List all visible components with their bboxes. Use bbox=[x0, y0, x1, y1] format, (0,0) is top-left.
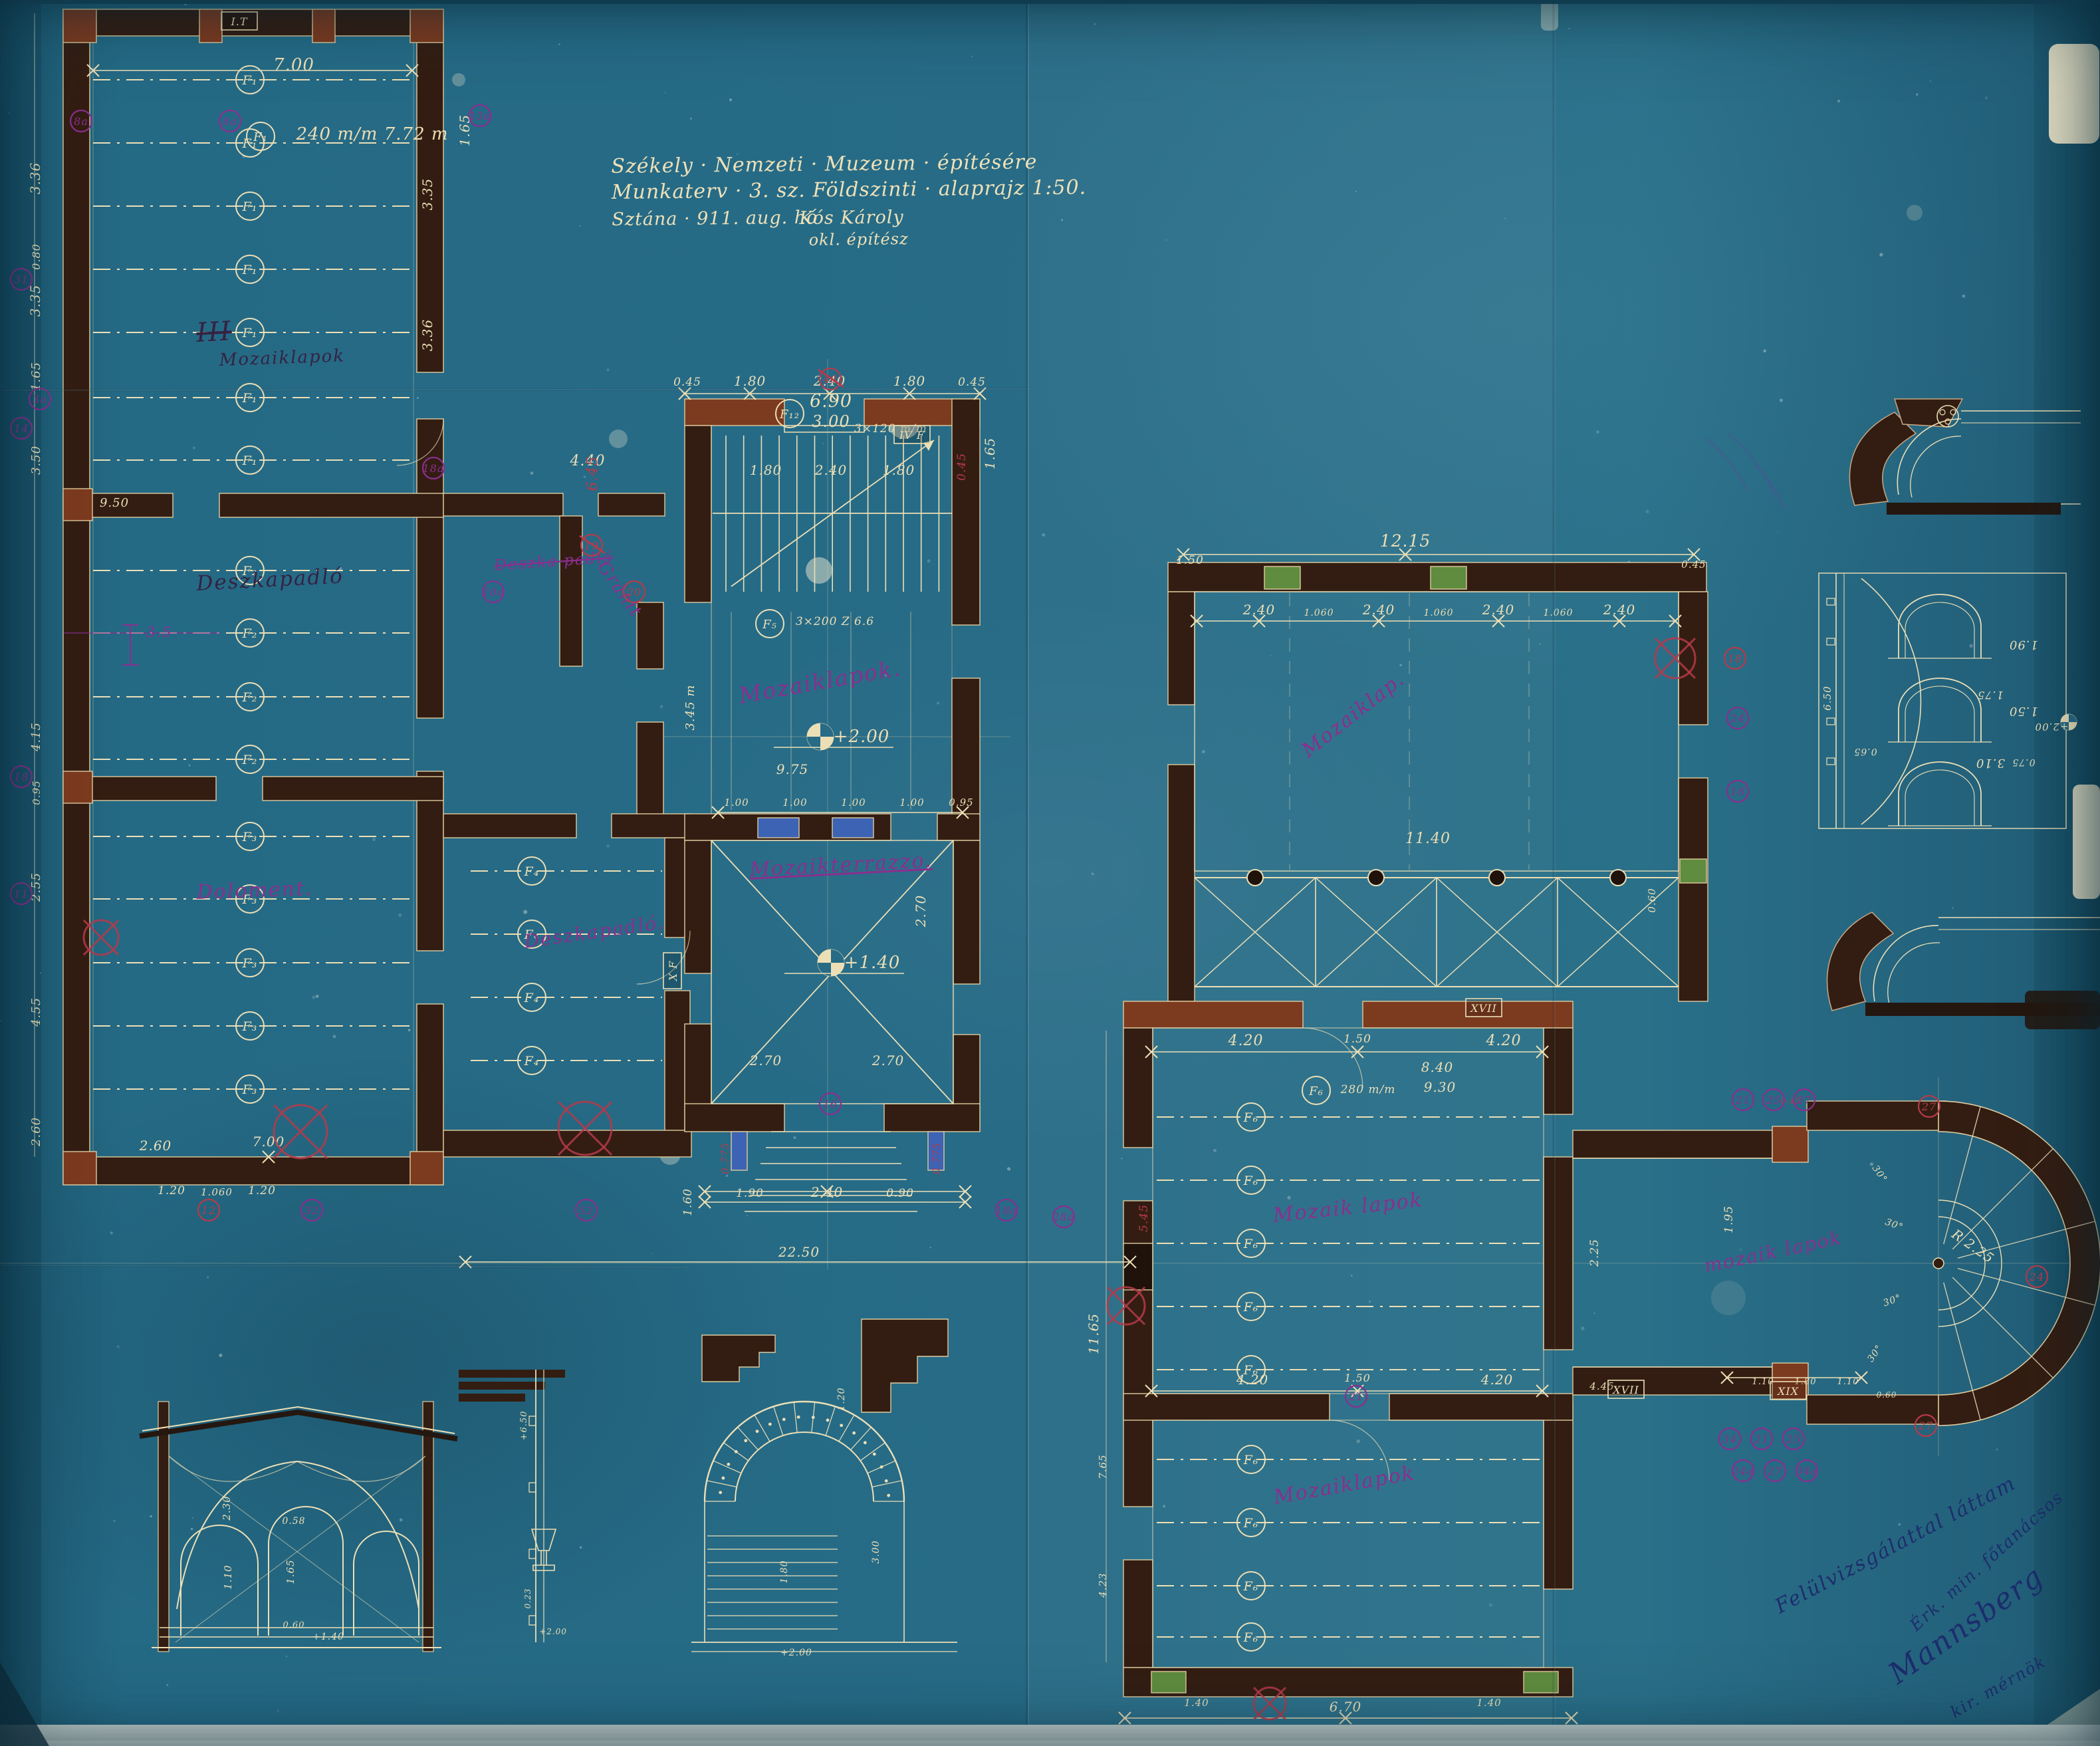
wall-segment bbox=[685, 1104, 784, 1132]
dimension-value: 1.90 bbox=[736, 1187, 764, 1200]
dimension-value: 1.060 bbox=[201, 1186, 233, 1198]
dimension-value: 6.50 bbox=[1821, 686, 1833, 710]
beam-label: F₆ bbox=[1243, 1630, 1259, 1645]
level-symbol-quadrant bbox=[831, 949, 844, 963]
architect-title: okl. építész bbox=[808, 228, 984, 251]
circled-number-text: 21 bbox=[1348, 1390, 1363, 1403]
arched-window bbox=[1905, 686, 1974, 742]
wall-segment bbox=[1168, 592, 1195, 705]
dimension-value: 3×200 Z 6.6 bbox=[796, 615, 874, 628]
beam-label: F₆ bbox=[1243, 1174, 1259, 1188]
dimension-value: 1.40 bbox=[1184, 1697, 1209, 1709]
speckle bbox=[606, 368, 609, 371]
dimension-value: +1.40 bbox=[312, 1632, 344, 1642]
circled-number-text: 18 bbox=[1730, 785, 1745, 798]
pencil-scribble bbox=[1706, 434, 1784, 509]
beam-label: F₆ bbox=[1308, 1084, 1324, 1098]
wall-segment bbox=[685, 399, 784, 426]
circled-number-text: 25 bbox=[1786, 1433, 1801, 1445]
circled-number-text: 12 bbox=[201, 1204, 216, 1217]
speckle bbox=[690, 118, 692, 120]
wall-segment bbox=[884, 1104, 980, 1132]
circled-number-text: 24 bbox=[1730, 712, 1745, 725]
wall-segment bbox=[63, 1152, 96, 1185]
ornament-dot bbox=[719, 1491, 722, 1494]
dimension-value: 1.80 bbox=[893, 373, 926, 389]
wall-segment bbox=[443, 1130, 691, 1157]
dimension-value: 0.75 bbox=[2012, 757, 2035, 767]
rect bbox=[529, 1616, 536, 1625]
beam-label: F₆ bbox=[1243, 1110, 1259, 1125]
dimension-value: +2.00 bbox=[780, 1648, 812, 1658]
section-wall bbox=[158, 1402, 169, 1652]
wall-segment bbox=[1123, 1028, 1153, 1148]
dimension-value: 1.40 bbox=[1476, 1697, 1501, 1709]
torn-paper-patch bbox=[2049, 44, 2099, 144]
wall-segment bbox=[952, 399, 980, 625]
ornament-dot bbox=[727, 1463, 730, 1466]
wall-segment bbox=[312, 9, 335, 43]
boxed-label-text: XIX bbox=[1776, 1385, 1799, 1398]
beam-label: F₂ bbox=[242, 753, 258, 767]
speckle bbox=[1593, 1312, 1595, 1314]
dimension-value: 1.90 bbox=[2009, 638, 2038, 652]
arched-window bbox=[1899, 594, 1981, 658]
title-line-1: Székely · Nemzeti · Muzeum · építésére bbox=[611, 150, 983, 180]
circled-number-text: 16 bbox=[823, 1098, 838, 1110]
speckle bbox=[1492, 1364, 1493, 1366]
speckle bbox=[1355, 191, 1357, 192]
dimension-value: 3.35 bbox=[27, 285, 43, 317]
dimension-value: 3.10 bbox=[1976, 756, 2005, 770]
wall-segment bbox=[199, 9, 222, 43]
boxed-label: I.T bbox=[221, 12, 257, 30]
paper-stain bbox=[452, 73, 465, 86]
speckle bbox=[746, 1215, 748, 1217]
circled-number-text: 18 bbox=[14, 771, 29, 783]
beam-label: F₁ bbox=[242, 73, 258, 88]
voussoir-line bbox=[713, 1461, 741, 1473]
dimension-value: +2.00 bbox=[539, 1627, 567, 1636]
circled-number-text: 25 bbox=[1766, 1094, 1781, 1106]
wall-segment bbox=[1679, 778, 1708, 1001]
speckle bbox=[1092, 872, 1094, 875]
rect bbox=[529, 1416, 536, 1426]
dimension-value: 4.55 bbox=[29, 997, 43, 1027]
speckle bbox=[665, 92, 666, 93]
section-arch-window bbox=[181, 1525, 258, 1636]
circled-number-text: 18a bbox=[423, 462, 445, 475]
circled-number-text: 24a bbox=[1732, 1465, 1754, 1477]
corbel-detail bbox=[862, 1319, 948, 1412]
ornament-dot bbox=[722, 1477, 725, 1480]
wall-segment bbox=[1573, 1130, 1772, 1158]
speckle bbox=[1163, 1505, 1165, 1508]
boxed-label-text: XVII bbox=[1469, 1002, 1497, 1015]
ornament-dot bbox=[797, 1416, 800, 1419]
wall-segment bbox=[443, 814, 576, 838]
room-label: Mozaikterrazzo. bbox=[749, 849, 933, 882]
wall-segment bbox=[63, 9, 96, 43]
speckle bbox=[1777, 531, 1778, 532]
beam-label: F₁ bbox=[242, 263, 258, 277]
beam-label: F₆ bbox=[1243, 1579, 1259, 1594]
wall-segment bbox=[952, 678, 980, 815]
dimension-value: 1.20 bbox=[158, 1184, 185, 1197]
dimension-value: 1.65 bbox=[29, 362, 43, 391]
paper-stain bbox=[1711, 1281, 1746, 1315]
dimension-value: 7.00 bbox=[273, 55, 314, 75]
dimension-value: 1.060 bbox=[1543, 608, 1573, 618]
dimension-value: 0.58 bbox=[282, 1516, 305, 1527]
profile-step bbox=[459, 1394, 525, 1402]
speckle bbox=[1898, 1523, 1901, 1526]
wall-segment bbox=[1679, 592, 1708, 725]
dimension-value: 1.060 bbox=[1423, 608, 1453, 618]
dimension-value: 22.50 bbox=[778, 1244, 820, 1260]
wall-segment bbox=[63, 771, 92, 803]
speckle bbox=[40, 972, 41, 973]
arch-section-wall bbox=[1850, 412, 1917, 505]
speckle bbox=[1504, 218, 1506, 219]
dimension-value: 3.00 bbox=[871, 1540, 881, 1563]
corbel-detail bbox=[702, 1335, 775, 1382]
beam-label: F₃ bbox=[242, 1019, 258, 1034]
beam-label: F₃ bbox=[242, 1082, 258, 1097]
scan-edge bbox=[0, 0, 2100, 4]
wall-segment bbox=[953, 840, 980, 984]
room-label: Deszkapadló. bbox=[522, 912, 665, 953]
room-label: Mozaiklapok. bbox=[737, 655, 903, 709]
dimension-value: 12.15 bbox=[1380, 531, 1431, 551]
dimension-value: 2.40 bbox=[1603, 602, 1636, 618]
dimension-value: 3.45 m bbox=[683, 685, 697, 731]
dimension-value: +2.00 bbox=[2035, 721, 2069, 733]
dimension-value: 1.50 bbox=[2009, 704, 2038, 718]
ink-blot bbox=[2025, 991, 2100, 1029]
speckle bbox=[1121, 1158, 1123, 1160]
circled-number-text: 34 bbox=[1722, 1433, 1737, 1445]
paper-texture-layer bbox=[0, 0, 2100, 1746]
beam-label: F₃ bbox=[242, 956, 258, 971]
window-green-mark bbox=[1680, 859, 1706, 883]
wall-segment bbox=[1123, 1560, 1153, 1668]
dimension-value: 6.90 bbox=[810, 391, 852, 412]
column-dot bbox=[1368, 870, 1384, 886]
dimension-value: 1.00 bbox=[899, 797, 924, 809]
dimension-value: 1.80 bbox=[779, 1560, 790, 1583]
boxed-label: XVII bbox=[1466, 999, 1502, 1017]
beam-label: F₁ bbox=[242, 391, 258, 406]
level-symbol-quadrant bbox=[820, 723, 834, 737]
room-label: Deszkapadló bbox=[195, 564, 344, 596]
wall-segment bbox=[1389, 1394, 1573, 1420]
wall-segment bbox=[219, 493, 443, 517]
speckle bbox=[1540, 644, 1541, 645]
dimension-value: 2.40 bbox=[1482, 602, 1515, 618]
dimension-value: 1.50 bbox=[1176, 554, 1204, 567]
circled-number-text: 14 bbox=[14, 422, 29, 435]
ornament-arch-inner bbox=[735, 1432, 874, 1501]
dimension-value: 3.36 bbox=[27, 162, 43, 195]
circled-number-text: 8a bbox=[74, 115, 88, 128]
speckle bbox=[286, 1656, 287, 1657]
dimension-value: 1.80 bbox=[734, 373, 766, 389]
beam-label: F₄ bbox=[524, 864, 540, 879]
wall-segment bbox=[1123, 1394, 1330, 1420]
speckle bbox=[9, 112, 10, 114]
ornament-dot bbox=[744, 1439, 747, 1442]
dimension-value: 1.20 bbox=[248, 1184, 276, 1197]
wall-segment bbox=[410, 1152, 443, 1185]
rect bbox=[1827, 638, 1835, 645]
beam-label: F₃ bbox=[242, 830, 258, 844]
window-blue-mark bbox=[758, 818, 799, 838]
circled-number-text: 52 bbox=[579, 1204, 594, 1217]
wall-segment bbox=[685, 426, 711, 602]
dimension-value: 1.10 bbox=[222, 1564, 234, 1589]
wall-segment bbox=[560, 516, 582, 666]
speckle bbox=[1969, 644, 1973, 648]
circled-number-text: 28a bbox=[1052, 1211, 1075, 1223]
dimension-value: 8.40 bbox=[1421, 1059, 1454, 1075]
title-line-2: Munkaterv · 3. sz. Földszinti · alaprajz… bbox=[612, 176, 984, 205]
circled-number-text: 21 bbox=[1754, 1433, 1769, 1445]
dimension-value: 2.70 bbox=[749, 1053, 782, 1068]
dimension-value: +6.50 bbox=[519, 1411, 529, 1441]
dimension-value: 0.60 bbox=[1877, 1390, 1897, 1400]
speckle bbox=[822, 443, 824, 444]
boxed-label-text: I.T bbox=[230, 15, 247, 28]
ornament-dot bbox=[887, 1494, 890, 1497]
rect bbox=[1827, 758, 1835, 765]
profile-step bbox=[459, 1370, 565, 1378]
circled-number-text: 24 bbox=[2029, 1271, 2044, 1283]
room-label: Mozaiklapok bbox=[218, 346, 345, 370]
speckle bbox=[332, 1035, 336, 1038]
rect bbox=[1827, 718, 1835, 725]
paper-stain bbox=[609, 430, 628, 448]
dimension-value: 9.30 bbox=[1424, 1079, 1457, 1095]
dimension-value: 2.25 bbox=[1588, 1239, 1601, 1267]
path bbox=[297, 1456, 425, 1481]
dimension-value: 0.775 bbox=[931, 1142, 943, 1174]
speckle bbox=[1645, 510, 1649, 513]
circled-number-text: 11 bbox=[14, 888, 29, 900]
beam-label: F₁ bbox=[242, 199, 258, 214]
arch-section-wall bbox=[1827, 912, 1894, 1011]
circled-number-text: 27 bbox=[1796, 1094, 1811, 1106]
ornament-dot bbox=[864, 1441, 867, 1444]
window-green-mark bbox=[1264, 566, 1300, 589]
dimension-value: 2.40 bbox=[814, 462, 848, 478]
circled-number-text: 8a bbox=[223, 115, 237, 128]
speckle bbox=[1879, 253, 1883, 256]
wall-segment bbox=[263, 777, 443, 801]
voussoir-line bbox=[860, 1443, 885, 1461]
speckle bbox=[1996, 1448, 1998, 1450]
speckle bbox=[927, 559, 931, 562]
dimension-value: 6.45 bbox=[584, 456, 601, 491]
dimension-value: 2.30 bbox=[221, 1495, 233, 1521]
speckle bbox=[726, 1175, 728, 1177]
window-green-mark bbox=[1431, 566, 1466, 589]
speckle bbox=[400, 1519, 403, 1522]
dimension-value: 0.45 bbox=[958, 376, 986, 389]
speckle bbox=[1930, 80, 1931, 82]
speckle bbox=[2087, 836, 2090, 839]
voussoir-line bbox=[839, 1415, 854, 1441]
dimension-value: 0.775 bbox=[719, 1142, 731, 1174]
dimension-value: 1.00 bbox=[782, 797, 807, 809]
circled-number-text: 34a bbox=[1796, 1465, 1818, 1477]
speckle bbox=[1489, 1603, 1492, 1606]
dimension-value: 7.65 bbox=[1097, 1454, 1109, 1479]
dimension-value: 1.80 bbox=[883, 462, 915, 478]
dimension-value: 11.65 bbox=[1086, 1313, 1102, 1354]
speckle bbox=[117, 1345, 120, 1348]
speckle bbox=[372, 838, 376, 841]
ornament-dot bbox=[885, 1479, 888, 1483]
speckle bbox=[114, 1520, 116, 1522]
path bbox=[1888, 943, 1940, 1004]
boxed-label-text: XVII bbox=[1611, 1384, 1639, 1396]
beam-label: F₁ bbox=[253, 130, 268, 144]
speckle bbox=[1399, 664, 1402, 666]
voussoir-line bbox=[774, 1406, 783, 1435]
dimension-value: 4.20 bbox=[1486, 1033, 1522, 1049]
speckle bbox=[312, 995, 316, 999]
speckle bbox=[166, 1684, 168, 1686]
dimension-value: 1.75 bbox=[1977, 689, 2004, 701]
room-label: Doloment. bbox=[195, 877, 313, 904]
circled-number-text: 27 bbox=[1918, 1420, 1933, 1432]
dimension-value: 0.80 bbox=[30, 243, 43, 270]
elevation-arc bbox=[1861, 578, 1921, 824]
speckle bbox=[1061, 219, 1063, 221]
level-value: +1.40 bbox=[844, 953, 901, 973]
dimension-value: 0.95 bbox=[31, 780, 43, 805]
speckle bbox=[523, 910, 527, 914]
dimension-value: 30° bbox=[1882, 1293, 1903, 1309]
dimension-value: 1.00 bbox=[841, 797, 866, 809]
dimension-value: 2.40 bbox=[1242, 602, 1276, 618]
voussoir-line bbox=[851, 1428, 872, 1450]
wall-segment bbox=[598, 493, 665, 516]
dimension-value: 2.70 bbox=[872, 1053, 905, 1068]
room-label: mozaik lapok bbox=[1702, 1227, 1844, 1277]
dimension-value: 1.95 bbox=[1722, 1205, 1736, 1233]
speckle bbox=[558, 43, 560, 45]
dimension-value: 2.40 bbox=[810, 1184, 844, 1200]
dimension-value: 4.20 bbox=[1228, 1033, 1264, 1049]
speckle bbox=[580, 1547, 582, 1549]
wall-segment bbox=[1544, 1157, 1573, 1350]
speckle bbox=[1351, 1275, 1353, 1277]
dimension-value: 1.20 bbox=[836, 1387, 847, 1410]
section-wall bbox=[423, 1402, 433, 1652]
dimension-value: 9.75 bbox=[776, 761, 809, 777]
column-dot bbox=[1247, 870, 1263, 886]
level-symbol-quadrant bbox=[818, 963, 831, 976]
speckle bbox=[530, 471, 534, 475]
wall-segment bbox=[63, 489, 92, 521]
dimension-value: 0.60 bbox=[1646, 888, 1658, 912]
speckle bbox=[189, 765, 191, 767]
speckle bbox=[1962, 295, 1966, 298]
boxed-label-text: IV F bbox=[899, 429, 925, 441]
rect bbox=[529, 1483, 536, 1492]
wall-segment bbox=[417, 1004, 443, 1157]
dimension-value: 4.20 bbox=[1236, 1372, 1269, 1388]
speckle bbox=[660, 705, 663, 708]
beam-label: F₆ bbox=[1243, 1300, 1259, 1314]
speckle bbox=[1870, 1162, 1873, 1166]
paper-stain bbox=[806, 557, 832, 584]
speckle bbox=[277, 1709, 279, 1712]
arched-window bbox=[1905, 602, 1974, 658]
wall-segment bbox=[1544, 1403, 1573, 1589]
apse-center bbox=[1933, 1258, 1944, 1269]
dimension-value: 2.60 bbox=[29, 1117, 43, 1147]
speckle bbox=[417, 397, 419, 399]
dimension-value: 1.65 bbox=[285, 1559, 296, 1584]
speckle bbox=[219, 1354, 222, 1357]
speckle bbox=[1596, 430, 1599, 434]
circled-number-text: 3a bbox=[33, 393, 47, 406]
rect bbox=[529, 1549, 536, 1559]
beam-label: F₂ bbox=[242, 626, 258, 641]
wall-segment bbox=[612, 814, 691, 838]
dimension-value: 1.50 bbox=[1343, 1033, 1371, 1046]
speckle bbox=[793, 1136, 796, 1139]
voussoir-line bbox=[794, 1402, 797, 1433]
circled-number-text: 13a bbox=[469, 110, 491, 122]
speckle bbox=[971, 56, 973, 57]
dimension-value: 2.40 bbox=[1362, 602, 1395, 618]
speckle bbox=[1094, 23, 1096, 25]
circled-number-text: 31 bbox=[14, 273, 29, 286]
dimension-value: 30° bbox=[1884, 1217, 1905, 1233]
speckle bbox=[1780, 398, 1783, 402]
beam-label: F₁ bbox=[242, 326, 258, 340]
window-blue-mark bbox=[832, 818, 874, 838]
dimension-value: 1.60 bbox=[681, 1188, 695, 1216]
speckle bbox=[316, 995, 319, 998]
path bbox=[1911, 436, 1961, 497]
dimension-value: 0.45 bbox=[1681, 559, 1706, 570]
speckle bbox=[1837, 100, 1840, 102]
speckle bbox=[207, 1276, 209, 1279]
dimension-value: 280 m/m bbox=[1340, 1083, 1396, 1096]
speckle bbox=[651, 1253, 653, 1254]
beam-label: F₁₂ bbox=[779, 408, 800, 422]
beam-label: F₂ bbox=[242, 690, 258, 705]
speckle bbox=[1568, 28, 1570, 29]
wall-segment bbox=[443, 493, 563, 516]
dimension-value: 4.20 bbox=[1480, 1372, 1514, 1388]
speckle bbox=[408, 1029, 411, 1032]
detail-frame bbox=[1819, 573, 2066, 828]
wall-segment bbox=[1123, 1001, 1303, 1028]
speckle bbox=[1369, 1301, 1371, 1303]
boxed-label: IV F bbox=[894, 426, 930, 443]
level-value: +2.00 bbox=[834, 727, 890, 747]
ornament-dot bbox=[768, 1423, 772, 1426]
speckle bbox=[729, 98, 732, 101]
speckle bbox=[930, 1247, 931, 1248]
wall-segment bbox=[410, 9, 443, 43]
